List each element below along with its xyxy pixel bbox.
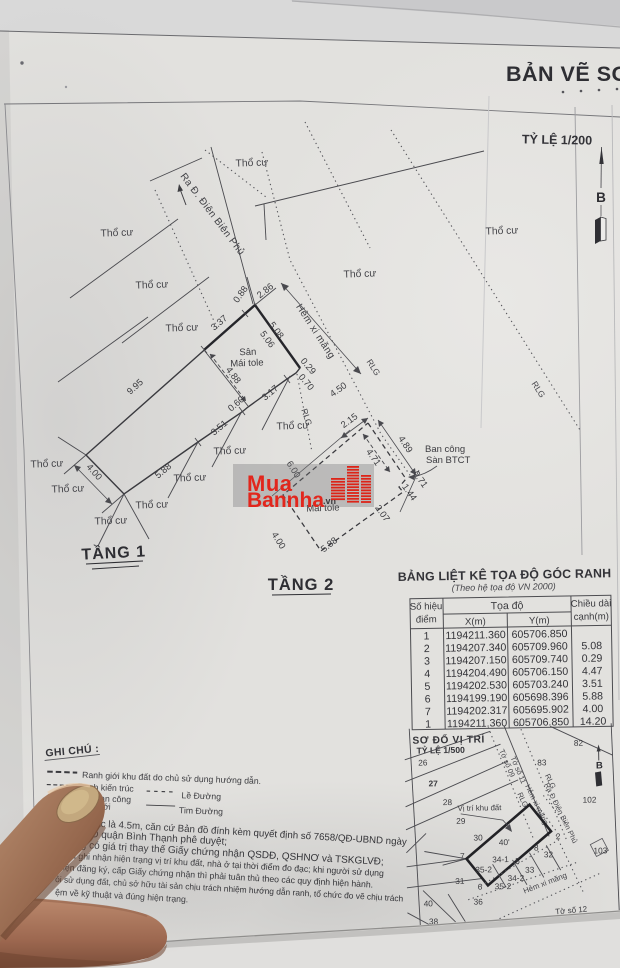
svg-text:0.29: 0.29 xyxy=(582,653,603,665)
svg-text:5: 5 xyxy=(424,681,430,693)
svg-text:33: 33 xyxy=(525,865,535,875)
svg-text:Thổ cư: Thổ cư xyxy=(30,457,63,470)
svg-text:14.20: 14.20 xyxy=(580,716,607,728)
svg-text:Tọa độ: Tọa độ xyxy=(491,600,524,613)
svg-text:30: 30 xyxy=(473,832,483,842)
svg-text:103: 103 xyxy=(593,845,607,855)
svg-text:34-1: 34-1 xyxy=(492,854,509,864)
svg-text:TẦNG 2: TẦNG 2 xyxy=(268,575,335,594)
svg-text:.vn: .vn xyxy=(323,496,336,506)
svg-text:28: 28 xyxy=(443,797,453,807)
svg-text:Thổ cư: Thổ cư xyxy=(173,471,206,484)
svg-text:31: 31 xyxy=(455,876,465,886)
svg-text:1194204.490: 1194204.490 xyxy=(446,667,507,680)
svg-text:X(m): X(m) xyxy=(465,616,486,627)
svg-text:1194202.317: 1194202.317 xyxy=(446,705,507,718)
svg-text:34-2: 34-2 xyxy=(507,873,524,883)
svg-text:605695.902: 605695.902 xyxy=(513,704,569,717)
svg-text:Thổ cư: Thổ cư xyxy=(100,226,133,239)
svg-text:3.51: 3.51 xyxy=(582,678,603,690)
svg-text:1: 1 xyxy=(424,630,430,642)
svg-text:40: 40 xyxy=(424,898,434,908)
svg-text:Vị trí khu đất: Vị trí khu đất xyxy=(458,803,503,813)
svg-text:1: 1 xyxy=(425,719,431,731)
svg-text:27: 27 xyxy=(428,778,438,788)
svg-text:1194211.360: 1194211.360 xyxy=(445,629,506,642)
svg-text:1194199.190: 1194199.190 xyxy=(446,692,507,705)
svg-text:5.08: 5.08 xyxy=(581,640,602,652)
svg-text:2: 2 xyxy=(556,831,561,841)
svg-text:4.00: 4.00 xyxy=(582,703,603,715)
svg-text:Mái tole: Mái tole xyxy=(230,357,264,369)
svg-text:2: 2 xyxy=(424,643,430,655)
svg-text:B: B xyxy=(596,760,603,771)
svg-text:BẢN VẼ SƠ: BẢN VẼ SƠ xyxy=(506,61,620,86)
svg-text:Số hiệu: Số hiệu xyxy=(410,601,443,613)
svg-text:(Theo hệ tọa độ VN 2000): (Theo hệ tọa độ VN 2000) xyxy=(452,581,556,593)
svg-text:TỶ LỆ 1/200: TỶ LỆ 1/200 xyxy=(522,131,592,147)
svg-text:29: 29 xyxy=(456,816,466,826)
svg-text:82: 82 xyxy=(574,738,584,748)
svg-text:4: 4 xyxy=(424,668,430,680)
svg-text:Thổ cư: Thổ cư xyxy=(235,156,268,169)
svg-text:Thổ cư: Thổ cư xyxy=(135,498,168,511)
svg-text:Ban công: Ban công xyxy=(425,444,465,455)
svg-text:32: 32 xyxy=(544,849,554,859)
svg-text:Sàn BTCT: Sàn BTCT xyxy=(426,455,471,466)
svg-text:605709.960: 605709.960 xyxy=(512,641,568,654)
svg-text:35-2: 35-2 xyxy=(475,864,492,874)
svg-text:B: B xyxy=(596,190,606,205)
svg-text:605698.396: 605698.396 xyxy=(513,691,569,704)
svg-text:102: 102 xyxy=(582,794,596,804)
svg-text:605706.850: 605706.850 xyxy=(511,628,567,641)
svg-text:6: 6 xyxy=(478,881,483,891)
svg-text:605703.240: 605703.240 xyxy=(512,678,568,691)
svg-text:26: 26 xyxy=(418,757,428,767)
svg-text:605706.850: 605706.850 xyxy=(513,716,569,729)
svg-text:5.88: 5.88 xyxy=(582,690,603,702)
svg-text:cạnh(m): cạnh(m) xyxy=(574,611,609,623)
svg-text:Thổ cư: Thổ cư xyxy=(343,267,376,280)
svg-text:5: 5 xyxy=(515,856,520,866)
svg-text:3: 3 xyxy=(424,656,430,668)
svg-text:Chiều dài: Chiều dài xyxy=(571,598,612,610)
svg-text:điểm: điểm xyxy=(416,614,437,625)
svg-text:40': 40' xyxy=(499,837,510,847)
svg-text:7: 7 xyxy=(425,706,431,718)
svg-text:1194211.360: 1194211.360 xyxy=(447,717,508,730)
svg-text:36: 36 xyxy=(474,896,484,906)
svg-text:Y(m): Y(m) xyxy=(529,615,550,626)
svg-text:Thổ cư: Thổ cư xyxy=(135,278,168,291)
svg-text:83: 83 xyxy=(537,757,547,767)
svg-text:1194207.150: 1194207.150 xyxy=(445,654,506,667)
svg-text:7: 7 xyxy=(460,851,465,861)
svg-text:1194202.530: 1194202.530 xyxy=(446,679,507,692)
svg-text:4.47: 4.47 xyxy=(582,665,603,677)
svg-text:Thổ cư: Thổ cư xyxy=(485,224,518,237)
svg-text:Thổ cư: Thổ cư xyxy=(276,419,309,432)
svg-text:605709.740: 605709.740 xyxy=(512,653,568,666)
svg-text:Thổ cư: Thổ cư xyxy=(94,514,127,527)
svg-text:8: 8 xyxy=(534,842,539,852)
svg-text:1194207.340: 1194207.340 xyxy=(445,642,506,655)
svg-text:6: 6 xyxy=(425,693,431,705)
svg-text:Thổ cư: Thổ cư xyxy=(213,444,246,457)
svg-text:Bannha: Bannha xyxy=(247,489,324,512)
svg-text:Thổ cư: Thổ cư xyxy=(51,482,84,495)
svg-text:Thổ cư: Thổ cư xyxy=(165,321,198,334)
svg-text:605706.150: 605706.150 xyxy=(512,666,568,679)
svg-text:Sân: Sân xyxy=(239,347,256,359)
